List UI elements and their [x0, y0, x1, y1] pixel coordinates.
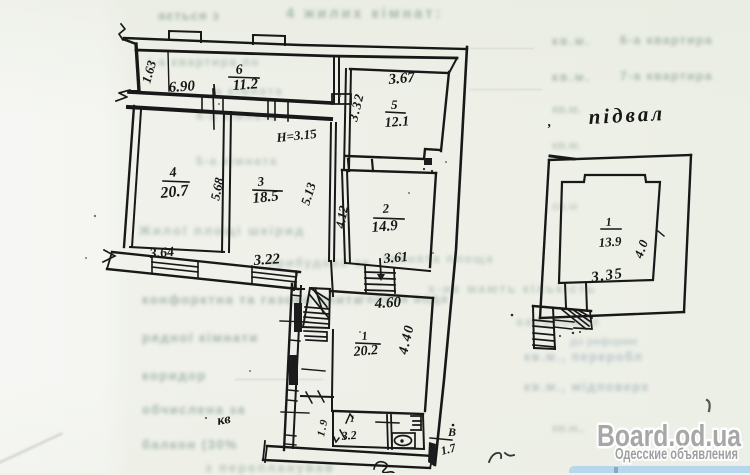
svg-text:4.0: 4.0: [630, 237, 651, 261]
svg-text:3: 3: [256, 173, 266, 189]
svg-text:1: 1: [350, 414, 355, 424]
svg-text:2: 2: [381, 200, 390, 216]
svg-text:5.13: 5.13: [298, 180, 319, 207]
svg-text:6: 6: [235, 63, 243, 78]
svg-text:4.60: 4.60: [373, 295, 402, 312]
svg-text:6.90: 6.90: [168, 78, 196, 96]
svg-text:1.9: 1.9: [315, 417, 331, 437]
svg-text:,: ,: [547, 115, 552, 130]
svg-text:3.35: 3.35: [589, 266, 624, 286]
svg-text:Одесские объявления: Одесские объявления: [615, 446, 738, 463]
svg-text:12.1: 12.1: [384, 114, 409, 131]
svg-text:3.2: 3.2: [340, 428, 357, 443]
svg-text:1: 1: [605, 215, 612, 229]
svg-text:3.64: 3.64: [148, 245, 175, 262]
svg-text:Н=3.15: Н=3.15: [275, 126, 318, 145]
svg-text:3.22: 3.22: [252, 251, 281, 269]
svg-text:13.9: 13.9: [598, 233, 622, 250]
svg-text:4: 4: [168, 165, 178, 181]
svg-text:кв: кв: [216, 412, 232, 429]
svg-text:3.32: 3.32: [345, 91, 367, 123]
svg-text:11.2: 11.2: [232, 76, 259, 94]
svg-text:20.2: 20.2: [352, 343, 379, 360]
svg-text:20.7: 20.7: [159, 182, 191, 202]
svg-text:3.61: 3.61: [382, 250, 409, 267]
svg-text:4.40: 4.40: [396, 323, 418, 357]
svg-text:14.9: 14.9: [371, 218, 399, 236]
svg-text:підвал: підвал: [588, 101, 666, 129]
svg-text:В: В: [447, 425, 456, 439]
svg-text:5: 5: [391, 97, 398, 112]
svg-text:1.7: 1.7: [439, 440, 458, 458]
svg-text:3.67: 3.67: [387, 70, 416, 88]
svg-text:1.63: 1.63: [138, 58, 159, 84]
svg-text:1: 1: [361, 329, 368, 343]
